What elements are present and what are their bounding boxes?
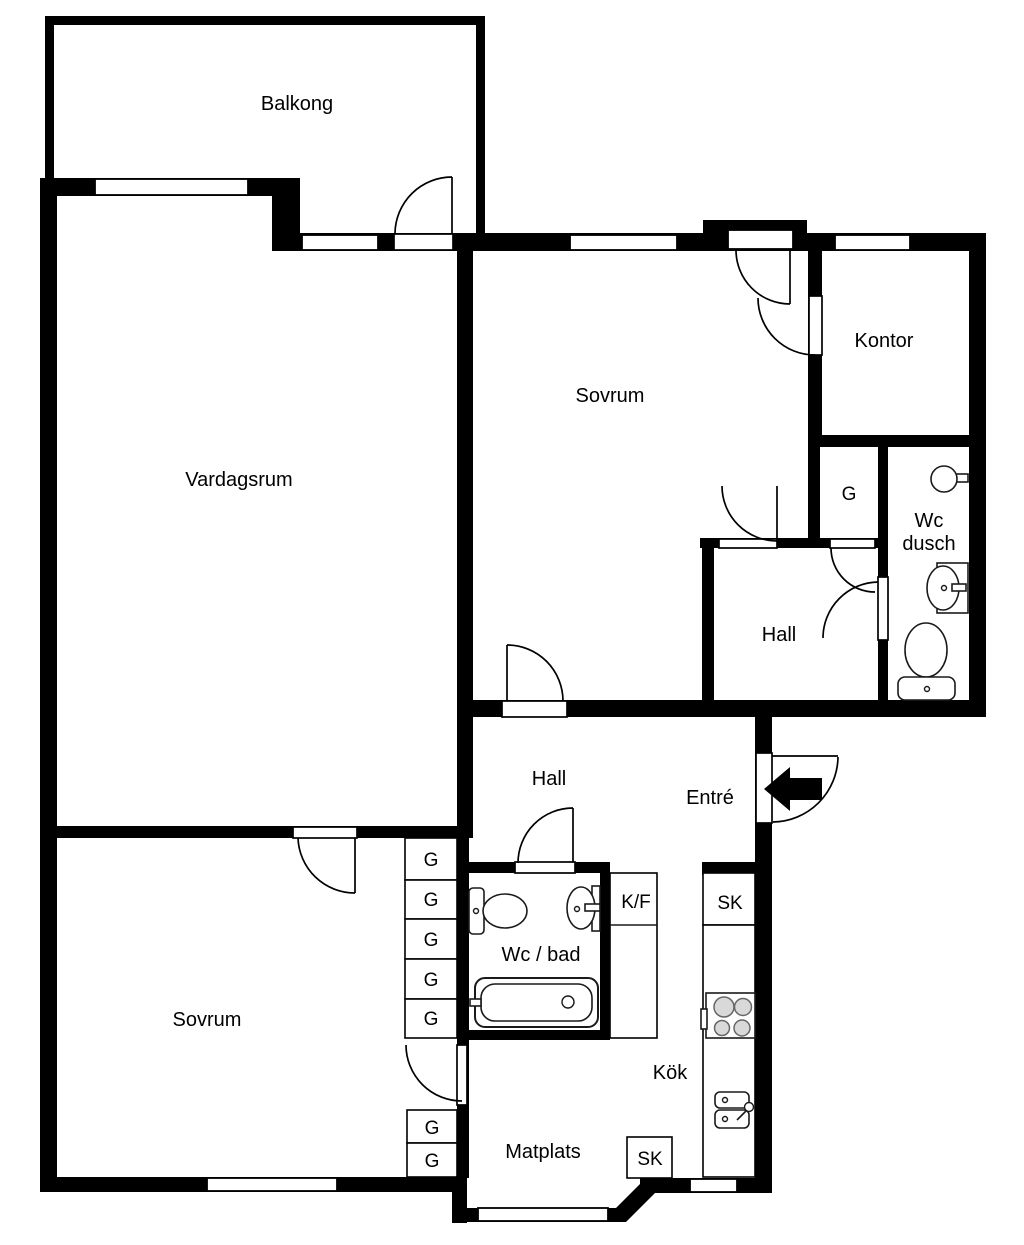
closet-label-g: G (424, 890, 439, 911)
kitchen-sink-icon (715, 1092, 754, 1128)
closet-label-sk-top: SK (717, 893, 743, 914)
door-sovrum-bay (736, 250, 790, 304)
closet-label-g: G (424, 970, 439, 991)
room-label-hall-upper: Hall (762, 624, 796, 646)
closet-label-kf: K/F (621, 892, 651, 913)
floor-plan: Balkong Vardagsrum Sovrum Kontor G Wc du… (0, 0, 1024, 1245)
door-sovrum-lower-hall (502, 645, 567, 717)
walls (40, 16, 986, 1223)
room-label-kontor: Kontor (855, 330, 914, 352)
window (570, 235, 677, 250)
door-wc-dusch (823, 577, 888, 640)
floor-plan-canvas: Balkong Vardagsrum Sovrum Kontor G Wc du… (0, 0, 1024, 1245)
door-sovrum-upper-hall (719, 486, 777, 548)
closet-label-g: G (842, 484, 857, 505)
bathroom-sink-icon (927, 563, 968, 613)
wall-segment (45, 16, 54, 196)
closet-label-g: G (424, 1009, 439, 1030)
closet-label-g: G (425, 1151, 440, 1172)
doors (293, 177, 888, 1105)
toilet-icon (469, 888, 527, 934)
wall-segment (457, 838, 469, 1040)
wall-segment (702, 548, 714, 701)
wall-segment (878, 447, 888, 701)
wall-segment (600, 862, 610, 1040)
closet-label-g: G (424, 850, 439, 871)
closet-label-g: G (424, 930, 439, 951)
room-label-kok: Kök (653, 1062, 688, 1084)
room-label-sovrum-top: Sovrum (576, 385, 645, 407)
door-g-closet (830, 539, 875, 592)
room-label-sovrum-bottom: Sovrum (173, 1009, 242, 1031)
window (302, 235, 378, 250)
window (95, 179, 248, 195)
closet-label-g: G (425, 1118, 440, 1139)
wall-segment (457, 1030, 610, 1040)
room-label-wc-dusch-line2: dusch (902, 533, 955, 555)
wall-segment (40, 178, 57, 1192)
window (478, 1208, 608, 1221)
kitchen-counter (703, 925, 755, 1177)
room-label-balkong: Balkong (261, 93, 333, 115)
room-label-wc-dusch-line1: Wc (915, 510, 944, 532)
room-label-entre: Entré (686, 787, 734, 809)
bathtub-icon (470, 978, 598, 1027)
stove-icon (701, 993, 755, 1038)
window (690, 1179, 737, 1192)
room-label-vardagsrum: Vardagsrum (185, 469, 292, 491)
closet-label-sk-bottom: SK (637, 1149, 663, 1170)
shower-icon (931, 466, 968, 492)
wall-segment (40, 826, 473, 838)
wall-segment (808, 447, 820, 539)
door-vardagsrum-sovrum (293, 827, 357, 893)
wall-segment (969, 233, 986, 717)
bathroom-sink-icon (567, 886, 600, 931)
wall-segment (45, 16, 485, 25)
door-balcony (394, 177, 453, 250)
door-sovrum-matplats (406, 1045, 467, 1105)
toilet-icon (898, 623, 955, 700)
wall-segment (476, 16, 485, 251)
wall-segment (457, 250, 473, 838)
wall-segment (808, 435, 986, 447)
room-label-wc-bad: Wc / bad (502, 944, 581, 966)
room-label-hall-lower: Hall (532, 768, 566, 790)
window (728, 230, 793, 249)
door-wc-bad (515, 808, 575, 873)
room-label-matplats: Matplats (505, 1141, 581, 1163)
window (835, 235, 910, 250)
window (207, 1178, 337, 1191)
